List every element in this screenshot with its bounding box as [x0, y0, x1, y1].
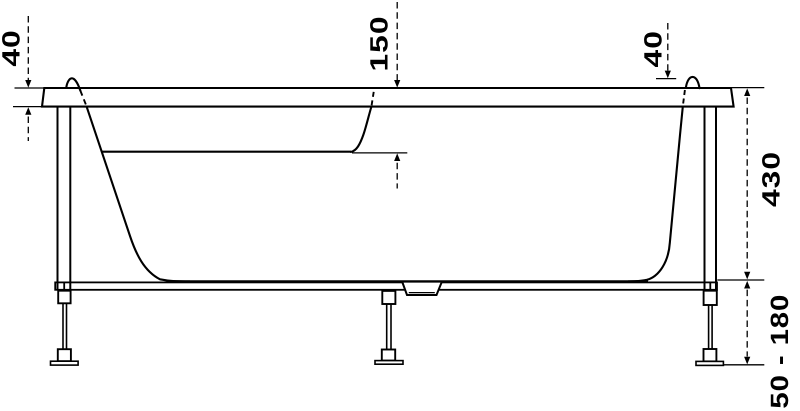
svg-text:40: 40 [639, 30, 667, 67]
svg-text:50 - 180: 50 - 180 [766, 294, 794, 409]
svg-text:150: 150 [366, 15, 394, 71]
svg-text:430: 430 [758, 151, 786, 207]
svg-text:40: 40 [0, 29, 25, 66]
